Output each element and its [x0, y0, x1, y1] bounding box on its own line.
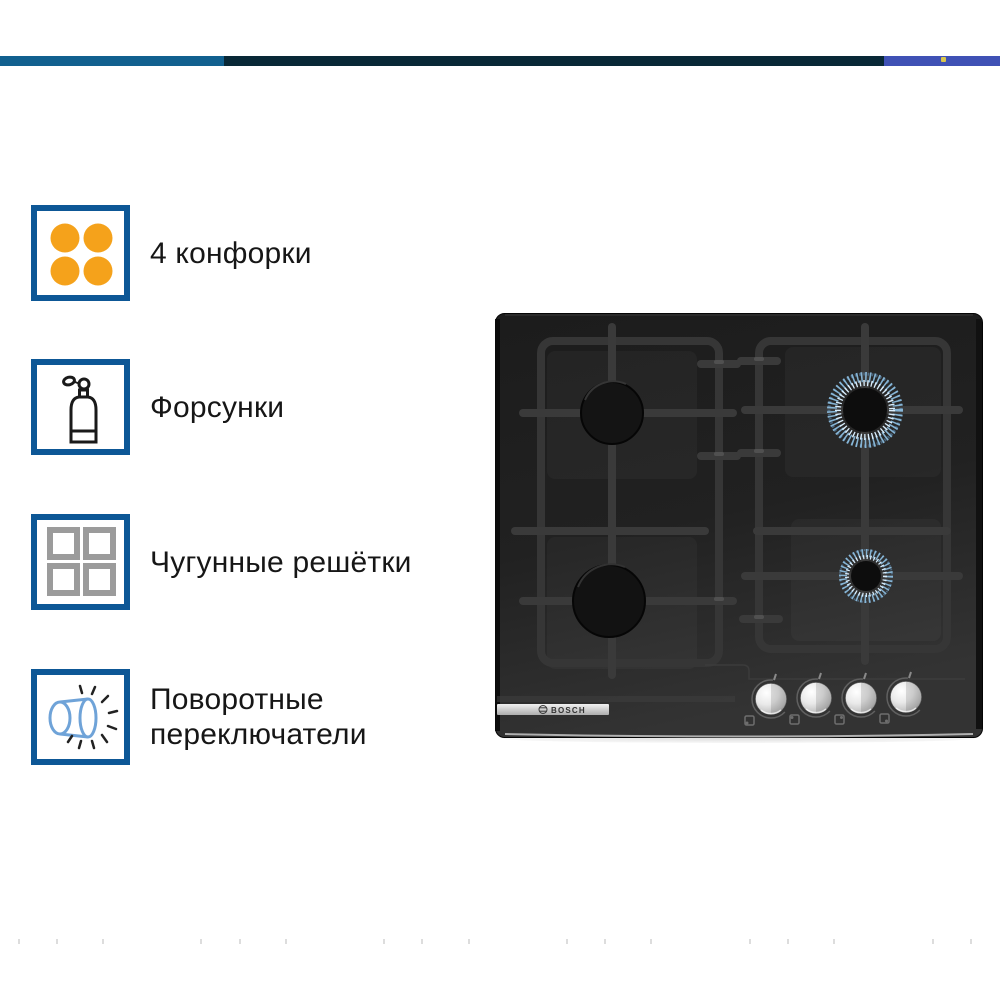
watermark-mark	[833, 939, 835, 944]
four-burners-glyph	[38, 211, 124, 295]
bosch-badge: BOSCH	[497, 704, 609, 715]
watermark-mark	[970, 939, 972, 944]
watermark-mark	[468, 939, 470, 944]
watermark-mark	[650, 939, 652, 944]
burner-cap-bottom-left	[573, 564, 645, 637]
brand-text: BOSCH	[551, 706, 586, 715]
watermark-mark	[566, 939, 568, 944]
gas-hob-graphic: BOSCH	[495, 313, 983, 738]
bar-segment-middle	[224, 56, 884, 66]
watermark-mark	[932, 939, 934, 944]
feature-row-burners: 4 конфорки	[31, 205, 312, 301]
feature-label: Форсунки	[150, 390, 284, 425]
watermark-mark	[285, 939, 287, 944]
burner-cap-top-left	[581, 381, 643, 444]
feature-label: Чугунные решётки	[150, 545, 412, 580]
gas-cylinder-icon	[31, 359, 130, 455]
rotary-knob-glyph	[38, 675, 124, 759]
watermark-mark	[200, 939, 202, 944]
bar-segment-right	[884, 56, 1000, 66]
watermark-mark	[421, 939, 423, 944]
watermark-mark	[18, 939, 20, 944]
product-photo-gas-hob: BOSCH	[495, 313, 983, 738]
watermark-mark	[102, 939, 104, 944]
front-edge-strip	[497, 696, 735, 702]
feature-row-grates: Чугунные решётки	[31, 514, 412, 610]
bar-accent-dot	[941, 57, 946, 62]
feature-row-rotary-switches: Поворотные переключатели	[31, 669, 415, 765]
bar-segment-left	[0, 56, 224, 66]
feature-label: Поворотные переключатели	[150, 682, 415, 752]
watermark-mark	[787, 939, 789, 944]
grates-glyph	[38, 520, 124, 604]
gas-cylinder-glyph	[38, 365, 124, 449]
watermark-mark	[604, 939, 606, 944]
watermark-mark	[749, 939, 751, 944]
cast-iron-grates-icon	[31, 514, 130, 610]
watermark-mark	[239, 939, 241, 944]
top-accent-bar	[0, 56, 1000, 66]
watermark-mark	[383, 939, 385, 944]
four-burners-icon	[31, 205, 130, 301]
watermark-mark	[56, 939, 58, 944]
rotary-knob-icon	[31, 669, 130, 765]
feature-row-nozzles: Форсунки	[31, 359, 284, 455]
feature-label: 4 конфорки	[150, 236, 312, 271]
